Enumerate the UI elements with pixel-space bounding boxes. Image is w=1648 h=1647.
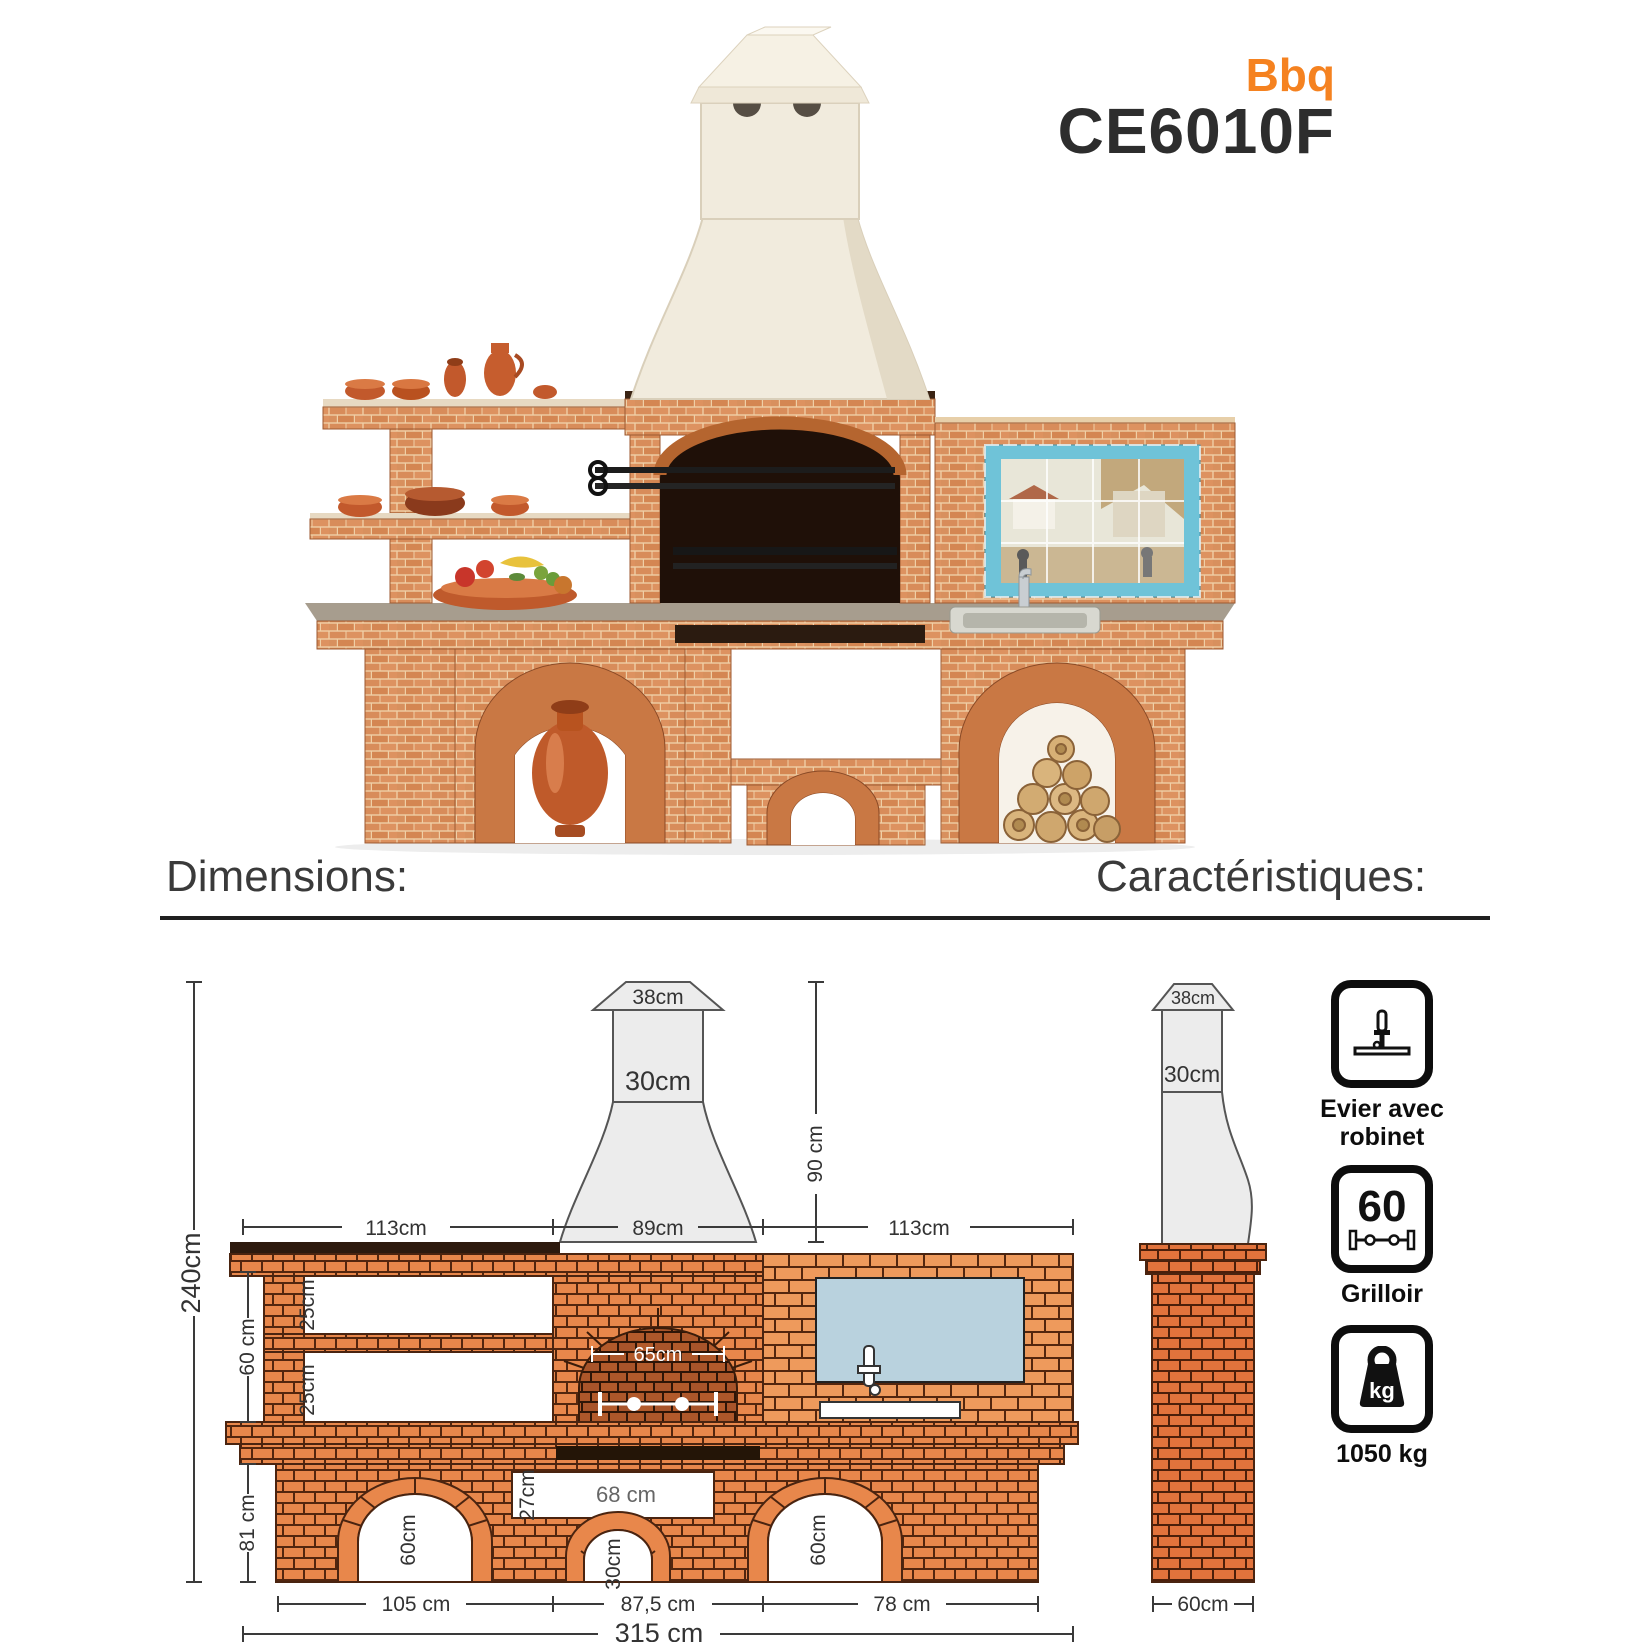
spit-bar: [627, 1397, 641, 1411]
tile-mural: [985, 445, 1200, 597]
side-column: [1152, 1274, 1254, 1582]
dim-arch-left: 60cm: [397, 1514, 420, 1565]
front-view: 38cm 30cm 90 cm 113cm 89cm 113cm 65cm: [176, 982, 1078, 1642]
dim-shelf-gap-upper: 25cm: [296, 1279, 319, 1330]
feature-sink-card: [1331, 980, 1433, 1088]
dimensions-drawing: 38cm 30cm 90 cm 113cm 89cm 113cm 65cm: [168, 942, 1298, 1642]
features-column: Evier avec robinet 60 Grilloir kg 1050 k…: [1262, 980, 1502, 1468]
feature-sink-label: Evier avec robinet: [1297, 1096, 1467, 1151]
dim-side-cap: 38cm: [1171, 988, 1215, 1008]
left-counter-top: [230, 1242, 560, 1254]
feature-grilloir-card: 60: [1331, 1165, 1433, 1273]
sink-basin: [820, 1402, 960, 1418]
top-slab: [230, 1254, 763, 1276]
feature-weight-label: 1050 kg: [1297, 1441, 1467, 1469]
splash-panel: [816, 1278, 1024, 1382]
dim-front-cap: 38cm: [632, 986, 683, 1009]
chimney: [631, 27, 929, 399]
dim-span-center: 87,5 cm: [621, 1593, 696, 1616]
dim-total-height: 240cm: [176, 1232, 206, 1313]
section-divider: [160, 916, 1490, 920]
characteristics-heading: Caractéristiques:: [1096, 852, 1426, 902]
dim-niche-width: 68 cm: [596, 1482, 656, 1507]
dim-firebox-span: 89cm: [632, 1217, 683, 1240]
weight-kg-badge: kg: [1369, 1378, 1395, 1403]
dim-firebox-inner: 65cm: [634, 1344, 683, 1366]
feature-weight-card: kg: [1331, 1325, 1433, 1433]
grill-firebox: [590, 391, 935, 603]
product-sheet: Bbq CE6010F Dimensions: Caractéristiques…: [0, 0, 1648, 1647]
dim-arch-center: 30cm: [602, 1538, 625, 1589]
feature-grilloir-label: Grilloir: [1297, 1281, 1467, 1309]
side-view: 38cm 30cm 60cm: [1140, 984, 1266, 1616]
dim-total-width: 315 cm: [615, 1618, 704, 1642]
fruit-platter: [433, 556, 577, 610]
dim-left-span: 113cm: [365, 1217, 426, 1240]
side-hood: [1162, 1092, 1252, 1244]
pottery: [338, 343, 557, 517]
dim-span-right: 78 cm: [873, 1593, 930, 1616]
dim-niche-height: 27cm: [516, 1469, 539, 1520]
dim-side-neck: 30cm: [1164, 1061, 1220, 1087]
dimensions-heading: Dimensions:: [166, 852, 408, 902]
spit-icon: [1348, 1229, 1416, 1251]
dim-front-neck: 30cm: [625, 1066, 691, 1096]
side-corbel: [1140, 1244, 1266, 1260]
brand-block: Bbq CE6010F: [990, 52, 1335, 165]
dim-right-span: 113cm: [888, 1217, 949, 1240]
dim-shelf-zone: 60 cm: [236, 1318, 259, 1375]
dim-side-depth: 60cm: [1177, 1593, 1228, 1616]
grilloir-value: 60: [1358, 1187, 1407, 1227]
dim-hood-height: 90 cm: [804, 1125, 827, 1182]
dim-shelf-gap-lower: 25cm: [296, 1364, 319, 1415]
product-model: CE6010F: [990, 98, 1335, 165]
counter-tier1: [226, 1422, 1078, 1444]
dim-base-height: 81 cm: [236, 1494, 259, 1551]
weight-icon: kg: [1350, 1346, 1414, 1412]
faucet-icon: [1351, 1003, 1413, 1065]
dim-arch-right: 60cm: [807, 1514, 830, 1565]
middle-shelf: [264, 1334, 553, 1352]
brand-tag: Bbq: [990, 52, 1335, 98]
ash-drawer: [556, 1446, 760, 1460]
dim-span-left: 105 cm: [382, 1593, 451, 1616]
